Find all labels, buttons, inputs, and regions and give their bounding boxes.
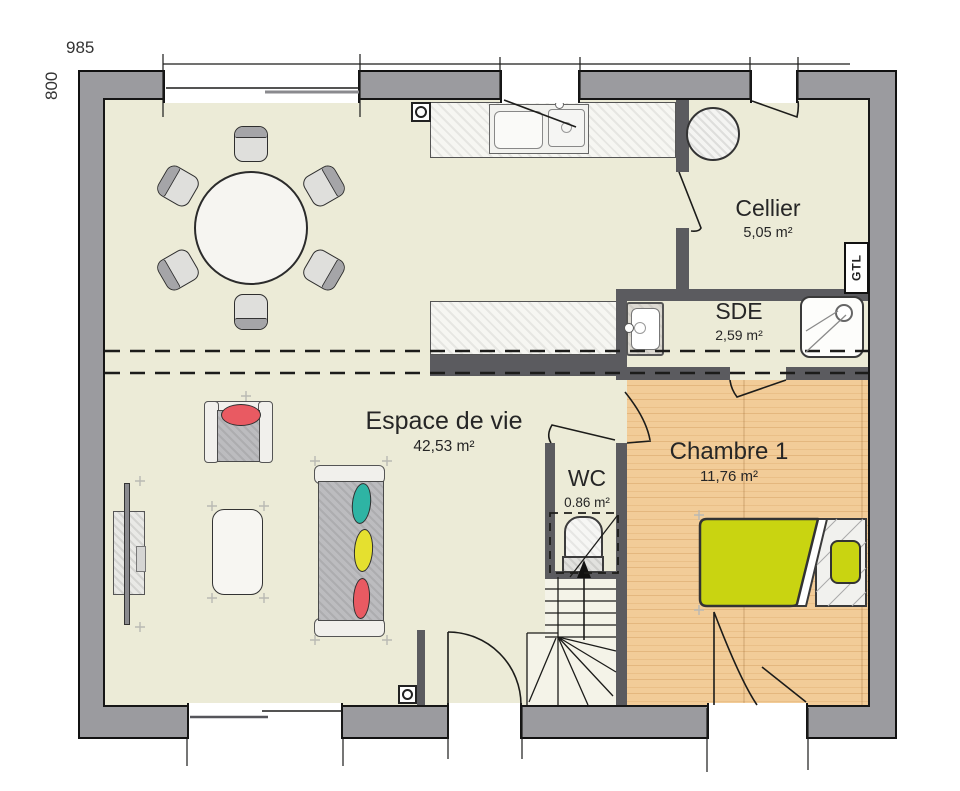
- room-label-cellier: Cellier 5,05 m²: [735, 196, 800, 241]
- stairs-landing: [527, 633, 558, 705]
- kitchen-counter-island: [430, 301, 625, 355]
- room-label-chambre-1: Chambre 1 11,76 m²: [670, 439, 789, 486]
- window-chambre: [707, 703, 808, 739]
- dimension-top: 985: [66, 38, 94, 58]
- toilet-bowl: [564, 516, 603, 560]
- door-cellier-exterior: [750, 70, 798, 103]
- washbasin-faucet: [624, 323, 634, 333]
- dining-chair: [234, 126, 268, 162]
- room-name: Cellier: [735, 196, 800, 222]
- room-name: WC: [564, 466, 610, 492]
- dimension-top-value: 985: [66, 38, 94, 57]
- water-heater: [686, 107, 740, 161]
- floor-chambre-wood: [627, 380, 868, 705]
- dimension-left-value: 800: [42, 72, 62, 100]
- room-name: Chambre 1: [670, 439, 789, 466]
- shower-drain: [835, 304, 853, 322]
- sofa-body: [318, 481, 384, 621]
- wall-sde-chambre-left: [616, 367, 730, 380]
- wall-sde-chambre-right: [786, 367, 868, 380]
- door-entrance: [447, 703, 522, 739]
- window-bay-bottom: [187, 703, 343, 739]
- sink-drain: [561, 122, 572, 133]
- gtl-label: GTL: [850, 255, 864, 282]
- dimension-left: 800: [40, 62, 64, 110]
- wall-entrance-stub: [417, 630, 425, 705]
- room-name: SDE: [715, 299, 762, 325]
- room-area: 5,05 m²: [735, 225, 800, 241]
- fixture-symbol-circle: [415, 106, 427, 118]
- chair-back: [235, 127, 267, 138]
- coffee-table: [212, 509, 263, 595]
- dining-table: [194, 171, 308, 285]
- room-area: 42,53 m²: [365, 438, 522, 455]
- armchair-cushion-red: [221, 404, 261, 426]
- fixture-symbol-bottom: [398, 685, 417, 704]
- wall-wc-west: [545, 443, 555, 575]
- armchair-arm-right: [258, 401, 273, 463]
- fixture-symbol-top: [411, 102, 431, 122]
- floor-plan: GTL: [0, 0, 960, 791]
- shower-tray: [800, 296, 864, 358]
- room-label-wc: WC 0.86 m²: [564, 466, 610, 510]
- room-area: 11,76 m²: [670, 469, 789, 486]
- window-kitchen: [500, 70, 580, 103]
- room-area: 2,59 m²: [715, 328, 762, 344]
- toilet-tank: [562, 556, 604, 573]
- room-label-sde: SDE 2,59 m²: [715, 299, 762, 343]
- knee-wall: [430, 355, 625, 376]
- window-bay-top: [163, 70, 360, 103]
- tv-mount: [136, 546, 146, 572]
- washbasin-drain: [634, 322, 646, 334]
- room-label-espace-de-vie: Espace de vie 42,53 m²: [365, 407, 522, 455]
- dining-chair: [234, 294, 268, 330]
- sink-bowl-left: [494, 111, 543, 149]
- room-area: 0.86 m²: [564, 495, 610, 510]
- room-name: Espace de vie: [365, 407, 522, 435]
- gtl-box: GTL: [844, 242, 869, 294]
- fixture-symbol-circle: [402, 689, 413, 700]
- tv-screen: [124, 483, 130, 625]
- chair-back: [235, 318, 267, 329]
